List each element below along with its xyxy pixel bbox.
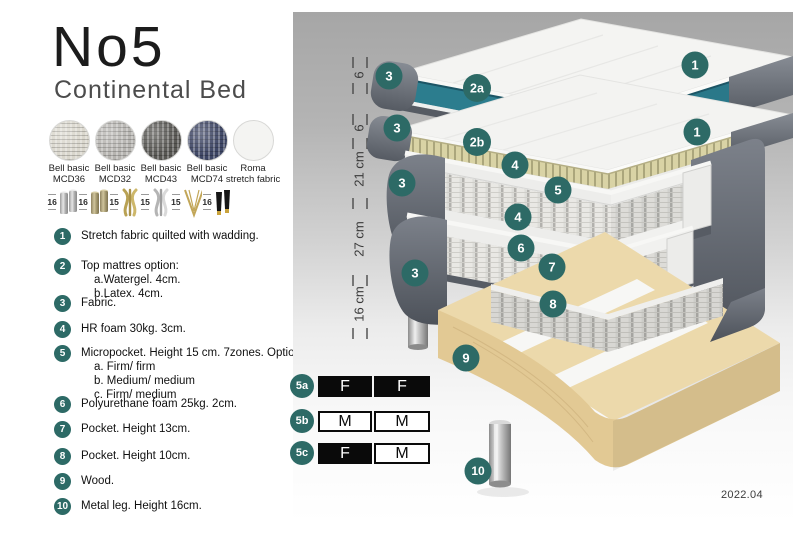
list-item: 4 HR foam 30kg. 3cm. — [54, 321, 186, 338]
item-number-badge: 9 — [54, 473, 71, 490]
firmness-badge: 5b — [290, 409, 314, 433]
callout-5: 5 — [545, 177, 572, 204]
svg-text:6: 6 — [352, 71, 367, 78]
svg-text:16 cm: 16 cm — [352, 286, 367, 321]
firmness-cell: M — [374, 411, 430, 432]
firmness-row-5a: 5a F F — [318, 376, 430, 397]
svg-text:1: 1 — [691, 58, 698, 73]
page-title: No5 — [52, 14, 166, 80]
svg-text:4: 4 — [514, 210, 522, 225]
list-item: 7 Pocket. Height 13cm. — [54, 421, 190, 438]
callout-9: 9 — [453, 345, 480, 372]
svg-text:5: 5 — [554, 183, 561, 198]
callout-7: 7 — [539, 254, 566, 281]
list-item: 10 Metal leg. Height 16cm. — [54, 498, 202, 515]
list-item: 1 Stretch fabric quilted with wadding. — [54, 228, 259, 245]
svg-text:3: 3 — [385, 69, 392, 84]
firmness-cell: F — [318, 376, 372, 397]
version-label: 2022.04 — [721, 489, 763, 501]
svg-text:8: 8 — [549, 297, 556, 312]
page-subtitle: Continental Bed — [54, 76, 247, 105]
list-item: 5 Micropocket. Height 15 cm. 7zones. Opt… — [54, 345, 304, 402]
callout-2a: 2a — [463, 74, 491, 102]
svg-text:2a: 2a — [470, 81, 485, 95]
fabric-swatch: Bell basicMCD36 — [47, 120, 91, 185]
callout-4-bottom: 4 — [505, 204, 532, 231]
svg-text:3: 3 — [398, 176, 405, 191]
item-number-badge: 3 — [54, 295, 71, 312]
fabric-swatches: Bell basicMCD36 Bell basicMCD32 Bell bas… — [47, 120, 275, 185]
fabric-swatch: Bell basicMCD43 — [139, 120, 183, 185]
fabric-swatch-circle — [95, 120, 136, 161]
fabric-swatch: Romastretch fabric — [231, 120, 275, 185]
callout-4-top: 4 — [502, 152, 529, 179]
item-number-badge: 8 — [54, 448, 71, 465]
firmness-cell: M — [318, 411, 372, 432]
leg-cylinder-bronze-icon — [88, 186, 109, 218]
firmness-cell: F — [318, 443, 372, 464]
leg-option: 16 — [78, 186, 109, 218]
item-number-badge: 2 — [54, 258, 71, 275]
svg-text:6: 6 — [352, 124, 367, 131]
fabric-swatch-circle — [49, 120, 90, 161]
callout-1-latex-top: 1 — [684, 119, 711, 146]
callout-10: 10 — [465, 458, 492, 485]
svg-text:9: 9 — [462, 351, 469, 366]
callout-3-pocket: 3 — [402, 260, 429, 287]
svg-text:3: 3 — [411, 266, 418, 281]
firmness-cell: M — [374, 443, 430, 464]
item-number-badge: 4 — [54, 321, 71, 338]
svg-text:10: 10 — [471, 464, 485, 478]
callout-6: 6 — [508, 235, 535, 262]
leg-option: 15 — [109, 186, 140, 218]
callout-3-micropocket: 3 — [389, 170, 416, 197]
svg-text:7: 7 — [548, 260, 555, 275]
leg-hairpin-icon — [181, 186, 202, 218]
svg-text:4: 4 — [511, 158, 519, 173]
leg-twist-silver-icon — [150, 186, 171, 218]
leg-option: 16 — [47, 186, 78, 218]
svg-text:1: 1 — [693, 125, 700, 140]
fabric-swatch-circle — [187, 120, 228, 161]
list-item: 6 Polyurethane foam 25kg. 2cm. — [54, 396, 237, 413]
svg-text:3: 3 — [393, 121, 400, 136]
firmness-cell: F — [374, 376, 430, 397]
info-panel: No5 Continental Bed Bell basicMCD36 Bell… — [0, 0, 293, 533]
leg-twist-gold-icon — [119, 186, 140, 218]
svg-text:6: 6 — [517, 241, 524, 256]
item-number-badge: 10 — [54, 498, 71, 515]
metal-leg-front — [477, 420, 529, 497]
callout-1-top: 1 — [682, 52, 709, 79]
list-item: 9 Wood. — [54, 473, 114, 490]
leg-option: 16 — [202, 186, 233, 218]
firmness-badge: 5a — [290, 374, 314, 398]
item-number-badge: 7 — [54, 421, 71, 438]
list-item: 3 Fabric. — [54, 295, 116, 312]
leg-cylinder-silver-icon — [57, 186, 78, 218]
leg-option: 15 — [140, 186, 171, 218]
dimension-labels: 6 6 21 cm 27 cm 16 cm — [352, 71, 367, 321]
leg-options: 16 16 15 15 — [47, 186, 233, 218]
fabric-swatch: Bell basicMCD74 — [185, 120, 229, 185]
item-number-badge: 6 — [54, 396, 71, 413]
callout-3-latex: 3 — [384, 115, 411, 142]
callout-3-top: 3 — [376, 63, 403, 90]
svg-text:21 cm: 21 cm — [352, 151, 367, 186]
leg-option: 15 — [171, 186, 202, 218]
firmness-row-5b: 5b M M — [318, 411, 430, 432]
firmness-badge: 5c — [290, 441, 314, 465]
bed-diagram-panel: 6 6 21 cm 27 cm 16 cm — [293, 12, 793, 522]
list-item: 8 Pocket. Height 10cm. — [54, 448, 190, 465]
svg-text:27 cm: 27 cm — [352, 221, 367, 256]
fabric-swatch-circle — [141, 120, 182, 161]
item-number-badge: 1 — [54, 228, 71, 245]
item-number-badge: 5 — [54, 345, 71, 362]
fabric-swatch-circle — [233, 120, 274, 161]
callout-8: 8 — [540, 291, 567, 318]
fabric-swatch: Bell basicMCD32 — [93, 120, 137, 185]
svg-text:2b: 2b — [470, 135, 485, 149]
leg-tapered-black-icon — [212, 186, 233, 218]
callout-2b: 2b — [463, 128, 491, 156]
firmness-row-5c: 5c F M — [318, 443, 430, 464]
